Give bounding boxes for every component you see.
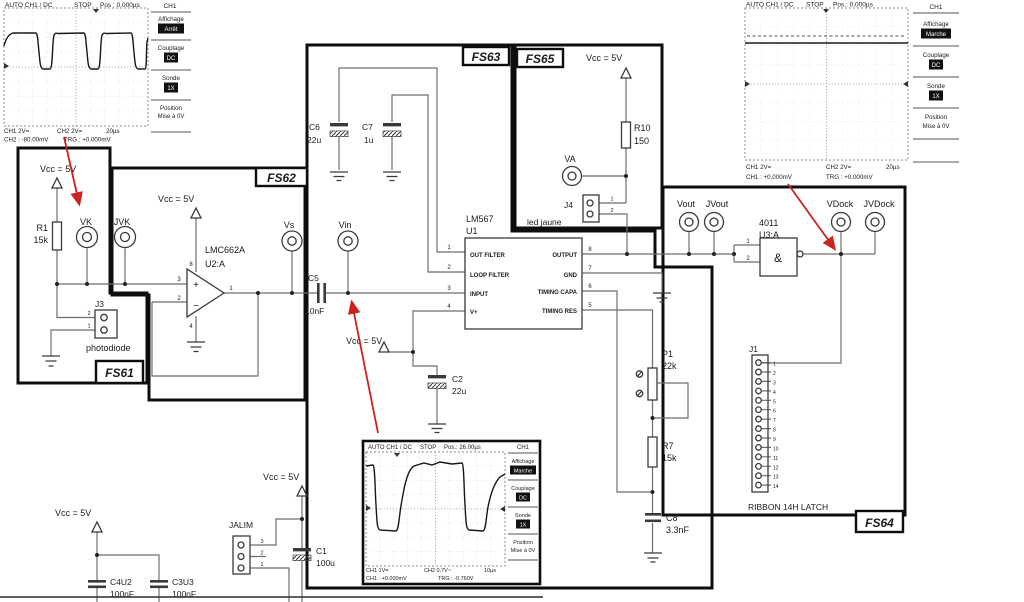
menu-label: Sonde <box>927 83 945 90</box>
menu-value: Mise à 0V <box>158 114 185 120</box>
c3u3-capacitor <box>150 580 168 588</box>
jvout-label: JVout <box>706 199 729 209</box>
jalim-pin3: 3 <box>260 539 263 545</box>
pin-vplus: V+ <box>470 310 478 316</box>
p1-value: 22k <box>662 361 677 371</box>
scope2-ch-value: CH1 : +0.000mV <box>746 174 793 181</box>
opamp-pin2: 2 <box>177 296 181 302</box>
j3-pin1: 1 <box>87 324 90 330</box>
scope1-trigger-value: TRG : +0.000mV <box>64 137 111 144</box>
p1-potentiometer <box>636 368 657 400</box>
oscilloscope-2: AUTO CH1 / DC STOP Pos.: 0.000µs CH1 Aff… <box>745 2 959 182</box>
vdock-label: VDock <box>827 199 854 209</box>
scope3-status: STOP <box>420 445 436 451</box>
c1-value: 100u <box>316 558 335 568</box>
menu-label: Affichage <box>923 21 949 28</box>
gate-pin1: 1 <box>746 239 750 245</box>
jalim-ref: JALIM <box>229 520 253 530</box>
scope3-channel: CH1 <box>517 445 530 451</box>
scope3-position: Pos.: 26.00µs <box>444 445 481 451</box>
j1-pin11: 11 <box>773 456 778 462</box>
menu-label: Couplage <box>158 45 185 52</box>
pin-output: OUTPUT <box>552 253 577 259</box>
c2-value: 22u <box>452 386 466 396</box>
menu-value: 1X <box>932 94 939 100</box>
scope1-channel: CH1 <box>163 3 176 10</box>
scope2-position: Pos.: 0.000µs <box>833 2 874 9</box>
j1-pin9: 9 <box>773 437 776 443</box>
scope2-trigger-value: TRG : +0.000mV <box>826 174 873 181</box>
u1-pin2: 2 <box>447 265 451 271</box>
menu-value: Marche <box>926 32 947 38</box>
menu-value: DC <box>519 496 527 502</box>
c6-ref: C6 <box>309 122 320 132</box>
jalim-connector <box>233 536 250 574</box>
menu-label: Affichage <box>512 459 535 465</box>
pin-gnd: GND <box>564 273 578 279</box>
u1-ref: U1 <box>466 226 478 236</box>
vout-label: Vout <box>677 199 696 209</box>
vin-label: Vin <box>339 220 352 230</box>
fs63-label: FS63 <box>463 47 509 65</box>
j4-connector <box>583 195 599 222</box>
arrow-scope3-to-input <box>352 303 378 433</box>
lm567-box <box>465 238 582 329</box>
opamp-pin3: 3 <box>177 277 181 283</box>
scope2-menu: CH1 Affichage Marche Couplage DC Sonde 1… <box>913 4 959 162</box>
c8-value: 3.3nF <box>666 525 690 535</box>
j1-pin10: 10 <box>773 446 779 452</box>
scope3-trigger-value: TRG : -0.760V <box>438 576 474 582</box>
c5-capacitor <box>317 283 326 303</box>
c7-ref: C7 <box>362 122 373 132</box>
u1-pin5: 5 <box>588 303 592 309</box>
scope3-ch1-scale: CH1 1V= <box>366 568 388 574</box>
r10-value: 150 <box>634 136 649 146</box>
menu-label: Couplage <box>923 52 950 59</box>
menu-value: Mise à 0V <box>923 124 950 130</box>
j1-pin3: 3 <box>773 380 776 386</box>
annotation-arrows <box>64 137 834 433</box>
opamp-minus: − <box>193 301 199 312</box>
r7-value: 15k <box>662 453 677 463</box>
vs-connector <box>282 231 302 251</box>
opamp-pin1: 1 <box>229 286 233 292</box>
fs61-label: FS61 <box>96 361 143 383</box>
j1-pin14: 14 <box>773 484 779 490</box>
j1-pin4: 4 <box>773 390 776 396</box>
scope1-timebase: 20µs <box>106 128 120 135</box>
jvdock-connector <box>866 213 885 232</box>
menu-value: DC <box>167 56 176 62</box>
vdock-connector <box>832 213 851 232</box>
fs61-label-text: FS61 <box>105 366 134 380</box>
ribbon-label: RIBBON 14H LATCH <box>748 502 828 512</box>
fs65-label-text: FS65 <box>526 52 555 66</box>
r10-ref: R10 <box>634 123 651 133</box>
fs65-label: FS65 <box>517 49 563 67</box>
jvk-label: JVK <box>114 217 131 227</box>
vk-label: VK <box>80 217 92 227</box>
j4-pin2: 2 <box>610 208 613 214</box>
j1-pin7: 7 <box>773 418 776 424</box>
r7-resistor <box>648 437 657 467</box>
u1-pin3: 3 <box>447 286 451 292</box>
u1-pin4: 4 <box>447 304 451 310</box>
p1-ref: P1 <box>662 349 673 359</box>
menu-value: Mise à 0V <box>511 548 536 554</box>
vcc-label: Vcc = 5V <box>346 336 382 346</box>
u1-pin7: 7 <box>588 266 592 272</box>
pin-input: INPUT <box>470 292 488 298</box>
c5-value: 10nF <box>305 306 324 316</box>
scope1-ch2-scale: CH2 2V= <box>57 128 83 135</box>
j3-ref: J3 <box>95 299 104 309</box>
c3u3-ref: C3U3 <box>172 577 194 587</box>
scope2-channel: CH1 <box>929 4 942 11</box>
j4-pin1: 1 <box>610 197 613 203</box>
c8-ref: C8 <box>666 513 678 523</box>
led-jaune-label: led jaune <box>527 217 562 227</box>
j1-connector <box>752 355 768 492</box>
fs64-label: FS64 <box>856 511 903 532</box>
menu-value: 1X <box>167 86 174 92</box>
schematic-page: FS61 FS62 FS63 FS65 FS64 <box>0 0 1024 602</box>
menu-label: Sonde <box>162 75 180 82</box>
vcc-label: Vcc = 5V <box>158 194 194 204</box>
pin-timing-res: TIMING RES <box>542 309 577 315</box>
fs64-label-text: FS64 <box>865 516 894 530</box>
u3a-ref: U3:A <box>759 230 779 240</box>
c4u2-ref: C4U2 <box>110 577 132 587</box>
scope1-menu: Affichage Arrêt Couplage DC Sonde 1X Pos… <box>151 12 191 132</box>
c8-capacitor <box>645 513 661 522</box>
vcc-label: Vcc = 5V <box>55 508 91 518</box>
j1-pin13: 13 <box>773 475 779 481</box>
pin-timing-capa: TIMING CAPA <box>538 290 578 296</box>
jvk-connector <box>115 227 136 248</box>
vout-connector <box>680 213 699 232</box>
r1-ref: R1 <box>36 223 48 233</box>
vcc-label: Vcc = 5V <box>586 53 622 63</box>
vk-connector <box>77 227 98 248</box>
opamp-plus: + <box>193 280 199 291</box>
vin-connector <box>338 231 358 251</box>
oscilloscope-3: AUTO CH1 / DC STOP Pos.: 26.00µs CH1 Aff… <box>363 441 540 584</box>
u2a-label: U2:A <box>205 259 225 269</box>
u1-pin1: 1 <box>447 245 451 251</box>
c6-value: 22u <box>307 135 321 145</box>
scope3-timebase: 10µs <box>484 568 496 574</box>
u1-pin8: 8 <box>588 247 592 253</box>
c2-ref: C2 <box>452 374 463 384</box>
menu-label: Affichage <box>158 16 184 23</box>
and-symbol: & <box>774 251 782 265</box>
lmc662a-label: LMC662A <box>205 245 245 255</box>
j3-connector <box>95 310 117 338</box>
opamp-pin8: 8 <box>189 262 193 268</box>
menu-label: Position <box>160 105 183 112</box>
jalim-pin1: 1 <box>260 562 263 568</box>
j4-ref: J4 <box>564 200 573 210</box>
jalim-pin2: 2 <box>260 551 263 557</box>
scope1-ch1-scale: CH1 2V= <box>4 128 30 135</box>
menu-value: DC <box>932 63 941 69</box>
oscilloscope-1: AUTO CH1 / DC STOP Pos : 0.000µs CH1 Aff… <box>4 2 191 144</box>
menu-label: Sonde <box>515 513 531 519</box>
photodiode-label: photodiode <box>86 343 131 353</box>
j1-pin1: 1 <box>773 362 776 368</box>
r1-value: 15k <box>33 235 48 245</box>
scope3-ch-value: CH1 : +0.000mV <box>366 576 407 582</box>
j1-pin6: 6 <box>773 409 776 415</box>
c1-ref: C1 <box>316 546 327 556</box>
menu-label: Couplage <box>511 486 535 492</box>
menu-label: Position <box>513 540 533 546</box>
u1-pin6: 6 <box>588 284 592 290</box>
menu-value: 1X <box>520 523 527 529</box>
c4u2-capacitor <box>88 580 106 588</box>
fs62-label: FS62 <box>256 168 307 186</box>
r10-resistor <box>622 122 631 148</box>
va-connector <box>563 167 582 186</box>
c5-ref: C5 <box>308 273 319 283</box>
vcc-label: Vcc = 5V <box>263 472 299 482</box>
j1-pin5: 5 <box>773 399 776 405</box>
jvdock-label: JVDock <box>863 199 895 209</box>
scope3-ch2-scale: CH2 0.7V~ <box>424 568 451 574</box>
scope2-mode: AUTO CH1 / DC <box>746 2 794 9</box>
r7-ref: R7 <box>662 441 674 451</box>
scope3-mode: AUTO CH1 / DC <box>368 445 413 451</box>
scope2-ch2-scale: CH2 2V= <box>826 164 852 171</box>
gate-4011-ref: 4011 <box>759 218 778 228</box>
j1-pin8: 8 <box>773 428 776 434</box>
c7-value: 1u <box>364 135 374 145</box>
va-label: VA <box>564 154 575 164</box>
gate-pin2: 2 <box>746 256 750 262</box>
j1-pin2: 2 <box>773 371 776 377</box>
r1-resistor <box>53 222 62 250</box>
vcc-symbols <box>52 68 631 532</box>
c6-capacitor <box>330 123 348 137</box>
menu-label: Position <box>925 114 948 121</box>
lm567-ref: LM567 <box>466 214 494 224</box>
j3-pin2: 2 <box>87 311 90 317</box>
jvout-connector <box>705 213 724 232</box>
fs62-label-text: FS62 <box>267 171 296 185</box>
scope1-ch-value: CH2 : -80.00mV <box>4 137 49 144</box>
c2-capacitor <box>428 375 446 389</box>
scope2-status: STOP <box>806 2 824 9</box>
vs-label: Vs <box>284 220 295 230</box>
j1-ref: J1 <box>749 344 758 354</box>
fs64-block <box>663 187 905 515</box>
scope2-ch1-scale: CH1 2V= <box>746 164 772 171</box>
menu-value: Arrêt <box>164 27 177 33</box>
scope2-timebase: 20µs <box>886 164 900 171</box>
pin-loop-filter: LOOP FILTER <box>470 273 510 279</box>
c7-capacitor <box>383 123 401 137</box>
fs63-label-text: FS63 <box>472 50 501 64</box>
menu-value: Marche <box>514 469 532 475</box>
opamp-pin4: 4 <box>189 324 193 330</box>
j1-pin12: 12 <box>773 465 779 471</box>
pin-out-filter: OUT FILTER <box>470 253 506 259</box>
